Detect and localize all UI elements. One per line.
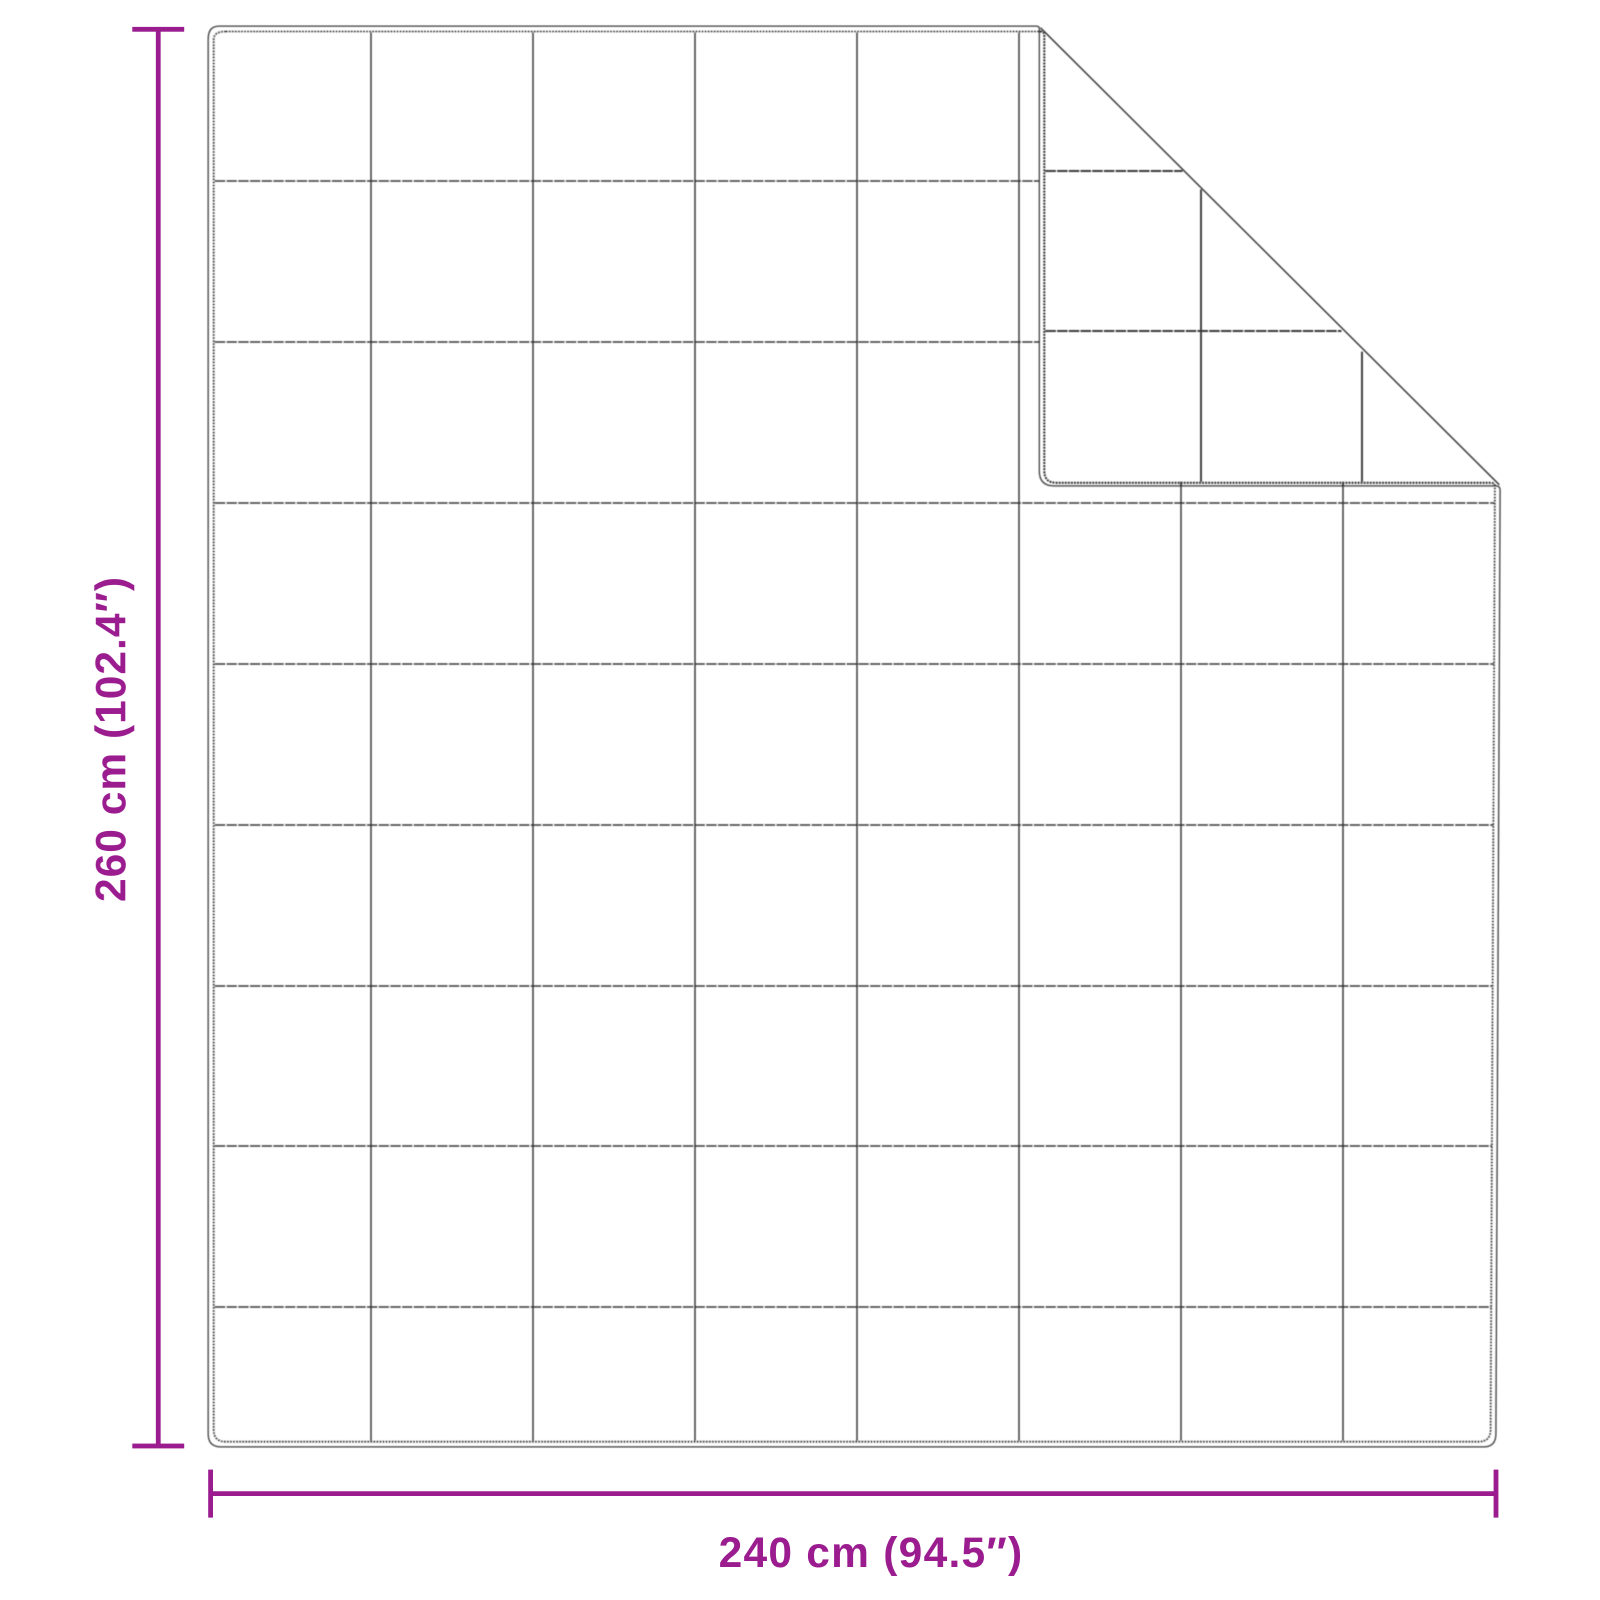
svg-text:240 cm (94.5″): 240 cm (94.5″) [719,1530,1024,1577]
svg-text:260 cm (102.4″): 260 cm (102.4″) [88,576,135,902]
